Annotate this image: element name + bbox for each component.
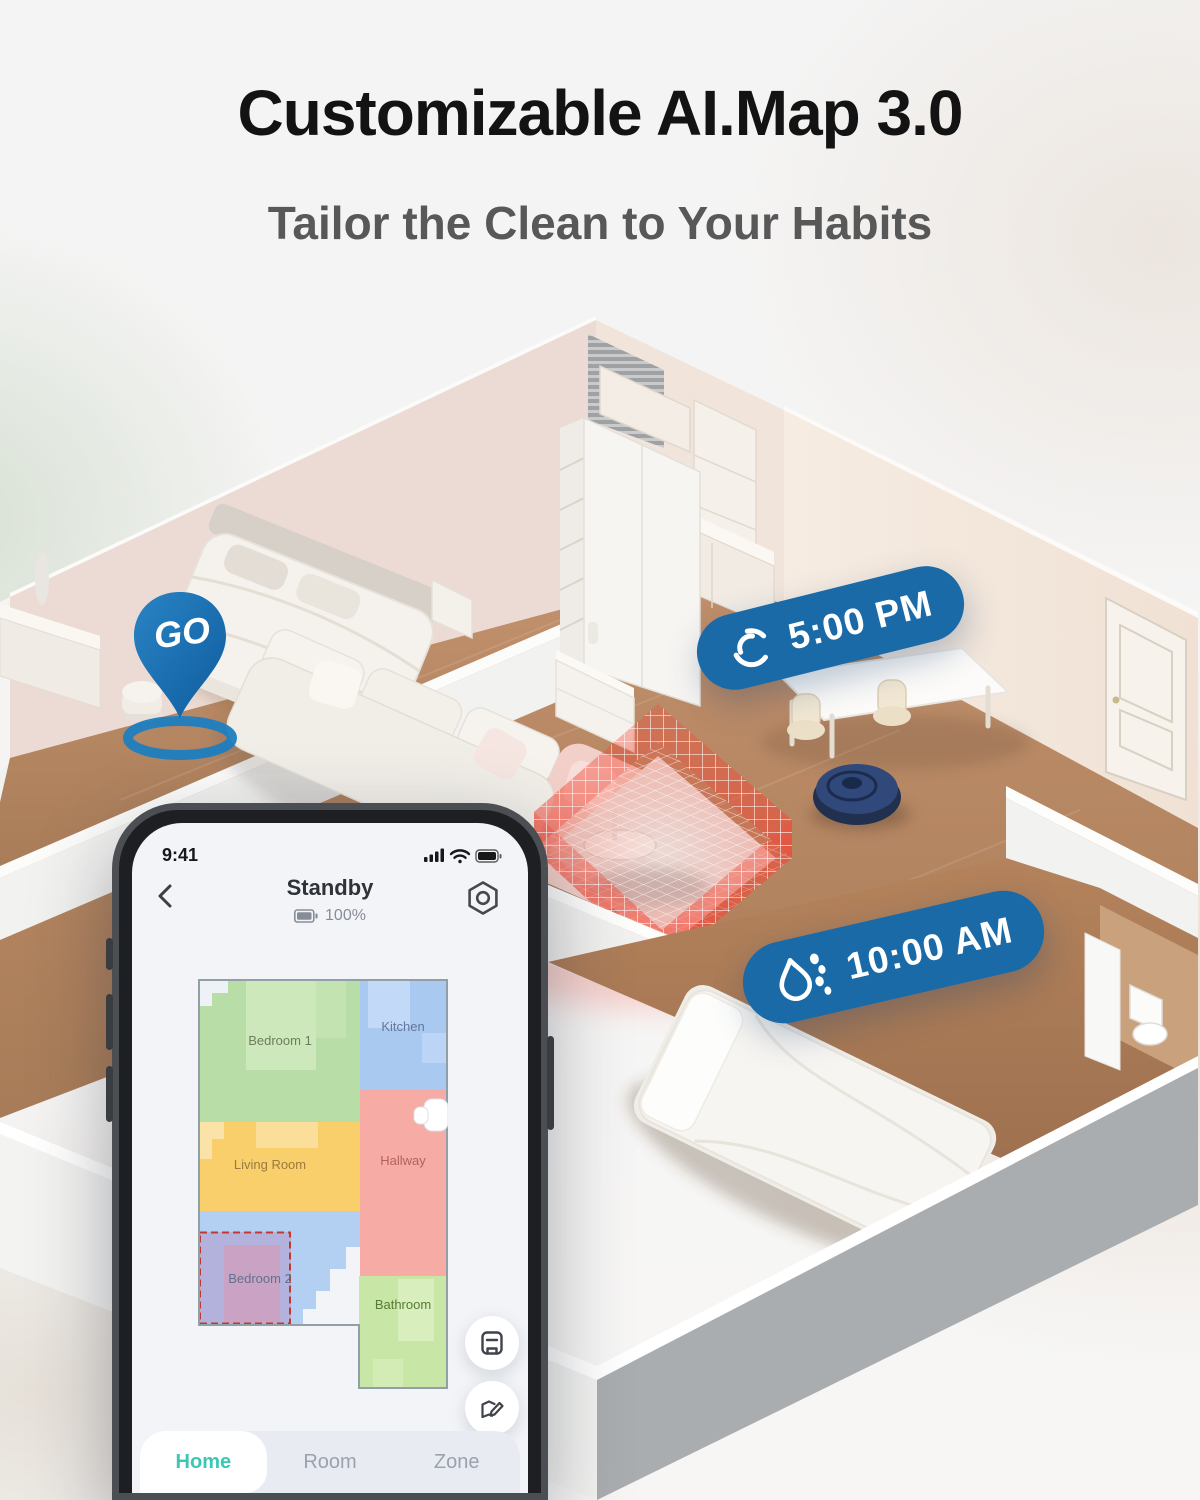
vacuum-spin-icon <box>724 620 780 676</box>
phone-mockup: 9:41 <box>112 803 548 1500</box>
water-drop-icon <box>769 946 837 1010</box>
edit-map-icon <box>478 1394 506 1422</box>
save-map-icon <box>478 1329 506 1357</box>
app-screen: 9:41 <box>132 823 528 1493</box>
phone-volume-down-button <box>106 1066 113 1122</box>
room-label: Hallway <box>380 1153 426 1168</box>
page-title: Customizable AI.Map 3.0 <box>0 76 1200 150</box>
phone-power-button <box>547 1036 554 1130</box>
room-label: Bedroom 1 <box>248 1033 312 1048</box>
battery-icon <box>476 850 502 862</box>
phone-volume-up-button <box>106 994 113 1050</box>
map-room-bedroom1[interactable] <box>199 980 360 1122</box>
go-pin: GO <box>114 578 250 770</box>
map-room-kitchen[interactable] <box>360 980 447 1089</box>
tab-home[interactable]: Home <box>140 1431 267 1493</box>
edit-map-button[interactable] <box>465 1381 519 1435</box>
phone-mute-switch <box>106 938 113 970</box>
settings-button[interactable] <box>462 877 504 919</box>
room-label: Living Room <box>234 1157 306 1172</box>
status-bar: 9:41 <box>132 845 528 869</box>
wifi-icon <box>451 850 469 863</box>
status-time: 9:41 <box>162 845 198 866</box>
map-room-bathroom[interactable] <box>359 1276 447 1388</box>
battery-percent: 100% <box>325 907 366 925</box>
tab-zone[interactable]: Zone <box>393 1431 520 1493</box>
page-subtitle: Tailor the Clean to Your Habits <box>0 196 1200 250</box>
app-header: Standby 100% <box>132 873 528 943</box>
signal-icon <box>424 849 444 863</box>
room-label: Bedroom 2 <box>228 1271 292 1286</box>
map-mode-tabbar: Home Room Zone <box>140 1431 520 1493</box>
settings-gear-icon <box>463 878 503 918</box>
tab-room[interactable]: Room <box>267 1431 394 1493</box>
bathroom-wall <box>1085 933 1120 1070</box>
robot-battery-icon <box>294 909 318 923</box>
schedule-time: 10:00 AM <box>842 909 1016 988</box>
floor-map: Bedroom 1 Kitchen Living Room Hallway Be… <box>198 979 448 1389</box>
room-label: Kitchen <box>381 1019 424 1034</box>
room-label: Bathroom <box>375 1297 431 1312</box>
status-icons <box>424 847 502 870</box>
save-map-button[interactable] <box>465 1316 519 1370</box>
